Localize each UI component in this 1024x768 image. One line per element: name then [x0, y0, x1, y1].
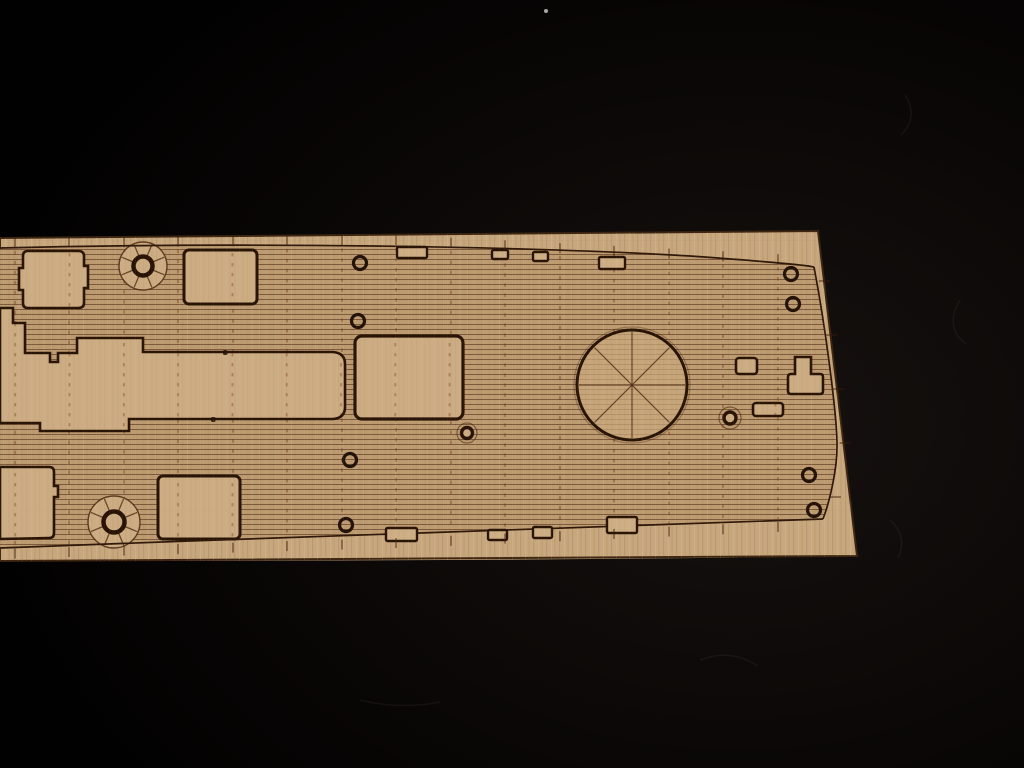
photo-tint-overlay [0, 231, 857, 561]
dust-speck [544, 9, 548, 13]
wood-sheet [0, 231, 857, 561]
ship-deck-photo [0, 0, 1024, 768]
photo-scene [0, 0, 1024, 768]
